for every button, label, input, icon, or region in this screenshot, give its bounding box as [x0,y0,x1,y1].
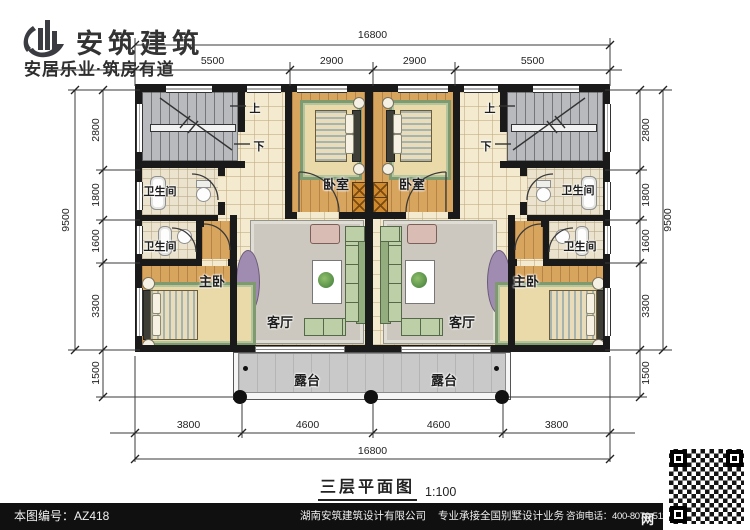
room-label-living-right: 客厅 [440,312,484,331]
dim-bottom-total: 16800 [340,445,405,457]
master-entry-right [515,221,543,259]
wall [218,202,225,215]
pillow [586,315,595,336]
loveseat-left [304,318,346,336]
pillow [345,134,354,154]
dim-left-total: 9500 [60,198,72,242]
toilet [196,187,211,202]
wall [196,221,202,259]
room-label-bathroom: 卫生间 [555,182,601,198]
pillow [152,293,161,314]
dim-top-seg: 2900 [299,55,364,67]
terrace-post [494,366,499,371]
room-label-bedroom-right: 卧室 [388,174,436,193]
nightstand [382,97,394,109]
qr-finder [670,450,687,467]
terrace-column [495,390,509,404]
wall [543,259,610,266]
bed-left [315,110,347,162]
wall-stair-bottom-left [135,161,245,168]
nightstand [353,97,365,109]
stair-down-label: 下 [479,138,493,154]
room-label-bathroom: 卫生间 [137,238,183,254]
dim-top-total: 16800 [340,29,405,41]
footer-service: 专业承接全国别墅设计业务 [438,503,564,530]
qr-finder [726,450,743,467]
wall-bath-left [135,215,218,221]
dim-top-seg: 2900 [382,55,447,67]
loveseat-right [401,318,443,336]
wall [543,221,549,259]
dim-top-seg: 5500 [180,55,245,67]
wall [508,259,517,266]
wall [372,212,406,219]
wall [339,212,373,219]
sheet-title-text: 三层平面图 [318,473,417,501]
pillow [345,114,354,134]
window [247,85,281,93]
dim-right-total: 9500 [662,198,674,242]
dim-right-seg: 1600 [640,219,652,263]
footer-bar: 本图编号：AZ418 湖南安筑建筑设计有限公司 专业承接全国别墅设计业务 咨询电… [0,503,663,530]
room-label-living-left: 客厅 [258,312,302,331]
dim-bottom-seg: 3800 [524,419,589,431]
footer-net-char: 网 [641,509,661,529]
window [604,288,611,336]
room-label-terrace-left: 露台 [284,370,330,389]
dim-left-seg: 1600 [90,219,102,263]
pillow [152,315,161,336]
dim-right-seg: 3300 [640,284,652,328]
terrace-column [233,390,247,404]
wall [448,212,460,219]
wall [520,202,527,215]
brand-slogan: 安居乐业·筑房有道 [24,55,175,80]
nightstand [142,277,155,290]
room-label-master-right: 主卧 [504,271,548,290]
wall-stair-right [500,92,507,132]
wall [218,168,225,176]
wall-bath-right [527,215,610,221]
wall-bottom [507,345,610,352]
room-label-terrace-right: 露台 [421,370,467,389]
dim-bottom-seg: 4600 [275,419,340,431]
armchair-left [310,224,340,244]
wall-bottom [135,345,238,352]
room-label-master-left: 主卧 [190,271,234,290]
dim-left-seg: 1500 [90,351,102,395]
stair-up-label: 上 [248,100,262,116]
window [604,226,611,254]
stair-up-label: 上 [483,100,497,116]
dim-left-seg: 2800 [90,108,102,152]
qr-finder [670,506,687,523]
master-entry-left [202,221,230,259]
plant-left [318,272,334,288]
dim-bottom-seg: 4600 [406,419,471,431]
room-label-bedroom-left: 卧室 [312,174,360,193]
dim-right-seg: 1500 [640,351,652,395]
plant-right [411,272,427,288]
wall-bedroom-right [453,92,460,212]
footer-drawing-no: 本图编号：AZ418 [14,503,109,530]
dim-bottom-seg: 3800 [156,419,221,431]
window [166,85,212,93]
window [398,85,448,93]
room-label-bathroom: 卫生间 [557,238,603,254]
wall [285,212,297,219]
sofa-seat-left [345,240,359,322]
stair-handrail-right [511,124,597,132]
bed-right [400,110,432,162]
footer-company: 湖南安筑建筑设计有限公司 [300,503,426,530]
sofa-seat-right [388,240,402,322]
wall [228,259,237,266]
toilet [536,187,551,202]
wall-bedroom-left [285,92,292,212]
sofa-corner-left [345,226,367,242]
brand-logo-icon [24,20,64,57]
stair-down-label: 下 [252,138,266,154]
terrace-post [243,366,248,371]
window [533,85,579,93]
window [297,85,347,93]
wall-stair-bottom-right [500,161,610,168]
dim-left-seg: 1800 [90,173,102,217]
floor-plan-sheet: 安筑建筑 安居乐业·筑房有道 安筑建筑 安筑建筑 安筑建筑 [0,0,750,530]
window [604,104,611,152]
wall [135,259,202,266]
window [136,104,143,152]
dim-right-seg: 2800 [640,108,652,152]
wall [520,168,527,176]
sofa-corner-right [380,226,402,242]
armchair-right [407,224,437,244]
pillow [393,134,402,154]
window [604,182,611,210]
dim-top-seg: 5500 [500,55,565,67]
window [136,288,143,336]
stair-handrail-left [150,124,236,132]
pillow [393,114,402,134]
dim-right-seg: 1800 [640,173,652,217]
sheet-scale: 1:100 [425,485,456,501]
terrace-column [364,390,378,404]
pillow [586,293,595,314]
dim-left-seg: 3300 [90,284,102,328]
room-label-bathroom: 卫生间 [137,183,183,199]
window [464,85,498,93]
sheet-title: 三层平面图 1:100 [318,473,456,501]
wall-stair-left [238,92,245,132]
